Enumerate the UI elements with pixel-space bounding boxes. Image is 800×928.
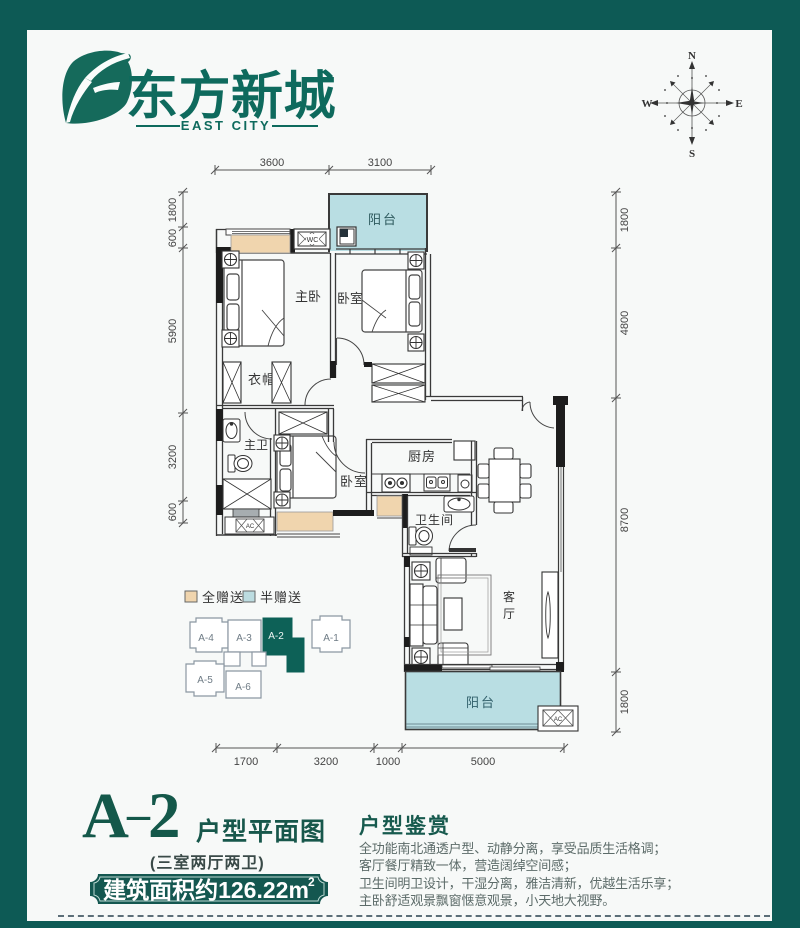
svg-text:A-1: A-1 xyxy=(323,633,339,644)
svg-text:A-2: A-2 xyxy=(268,631,284,642)
svg-text:3100: 3100 xyxy=(368,157,392,169)
svg-text:阳台: 阳台 xyxy=(368,212,398,227)
svg-text:WC: WC xyxy=(307,237,319,244)
svg-text:4800: 4800 xyxy=(619,311,631,335)
svg-text:AC: AC xyxy=(554,717,563,723)
svg-text:厅: 厅 xyxy=(503,607,515,621)
svg-text:建筑面积约126.22m: 建筑面积约126.22m xyxy=(103,877,309,903)
svg-text:客: 客 xyxy=(503,589,515,604)
svg-text:1000: 1000 xyxy=(376,756,400,768)
svg-text:全赠送: 全赠送 xyxy=(202,590,244,605)
svg-text:5000: 5000 xyxy=(471,756,495,768)
svg-text:半赠送: 半赠送 xyxy=(260,590,302,605)
svg-text:3600: 3600 xyxy=(260,157,284,169)
svg-text:5900: 5900 xyxy=(167,319,179,343)
svg-text:卧室: 卧室 xyxy=(340,474,368,489)
svg-text:1800: 1800 xyxy=(619,690,631,714)
svg-text:厨房: 厨房 xyxy=(408,449,436,464)
svg-text:3200: 3200 xyxy=(167,445,179,469)
svg-text:主卧: 主卧 xyxy=(295,289,321,304)
svg-text:2: 2 xyxy=(308,875,315,889)
svg-text:A-6: A-6 xyxy=(235,682,251,693)
svg-text:1800: 1800 xyxy=(619,208,631,232)
svg-text:1700: 1700 xyxy=(234,756,258,768)
svg-text:600: 600 xyxy=(167,229,179,247)
svg-text:600: 600 xyxy=(167,503,179,521)
svg-text:A-4: A-4 xyxy=(198,633,214,644)
svg-text:3200: 3200 xyxy=(314,756,338,768)
svg-text:A-3: A-3 xyxy=(236,633,252,644)
svg-text:卫生间: 卫生间 xyxy=(415,513,454,527)
svg-text:AC: AC xyxy=(246,524,255,530)
svg-text:A-5: A-5 xyxy=(197,675,213,686)
svg-text:卧室: 卧室 xyxy=(337,291,363,306)
svg-text:8700: 8700 xyxy=(619,508,631,532)
svg-text:阳台: 阳台 xyxy=(466,695,496,710)
svg-text:1800: 1800 xyxy=(167,198,179,222)
svg-text:主卫: 主卫 xyxy=(244,438,268,452)
